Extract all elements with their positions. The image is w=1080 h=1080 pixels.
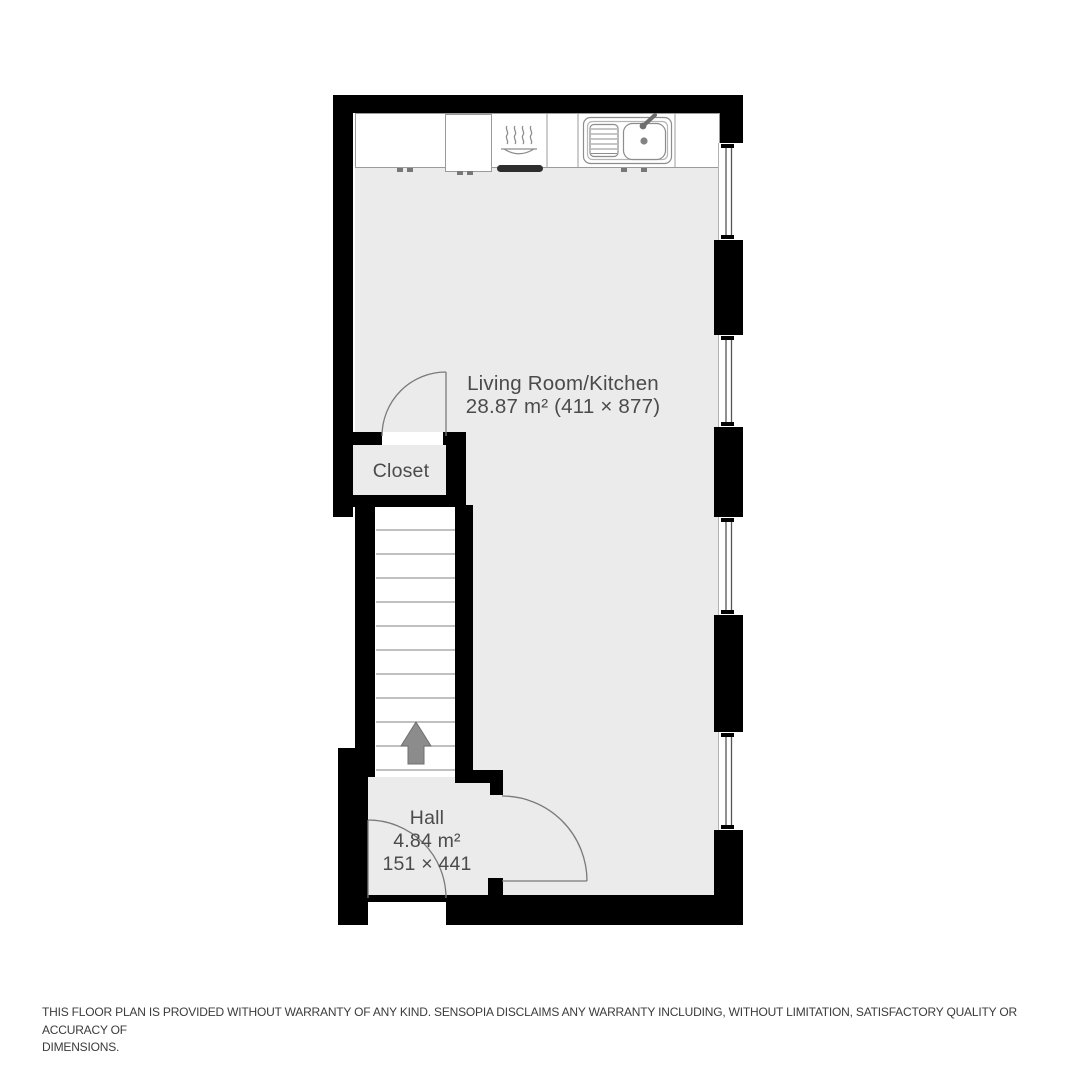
disclaimer-text: THIS FLOOR PLAN IS PROVIDED WITHOUT WARR… <box>42 1004 1042 1057</box>
floor-plan-page: Living Room/Kitchen 28.87 m² (411 × 877)… <box>0 0 1080 1080</box>
hall-dimensions: 151 × 441 <box>382 853 471 875</box>
bottom-right-corner-wall <box>714 830 743 925</box>
faucet-knob <box>640 123 647 130</box>
living-room-floor-lower <box>466 432 718 895</box>
hall-area: 4.84 m² <box>393 830 461 852</box>
sink-icon <box>584 115 672 164</box>
window-2 <box>718 335 743 427</box>
floor-plan: Living Room/Kitchen 28.87 m² (411 × 877)… <box>0 0 1080 1080</box>
hall-door-jamb-top <box>490 770 503 795</box>
right-wall-segment-1 <box>714 240 743 335</box>
closet-label: Closet <box>373 460 430 482</box>
right-wall-segment-3 <box>714 615 743 732</box>
top-wall <box>333 95 743 113</box>
base-cabinet <box>446 115 492 172</box>
closet-door-jamb-left <box>353 432 382 445</box>
staircase <box>375 507 457 777</box>
living-room-label: Living Room/Kitchen <box>467 372 659 395</box>
disclaimer-line-1: THIS FLOOR PLAN IS PROVIDED WITHOUT WARR… <box>42 1005 1017 1037</box>
window-1 <box>718 143 743 240</box>
kitchen-counter <box>356 114 720 176</box>
stair-right-wall <box>455 505 473 783</box>
top-right-corner-wall <box>720 95 743 143</box>
right-wall-segment-2 <box>714 427 743 517</box>
left-wall-upper <box>333 95 353 517</box>
entry-doorway-gap <box>368 902 446 925</box>
window-4 <box>718 732 743 830</box>
oven-door-bar <box>497 165 543 172</box>
window-3 <box>718 517 743 615</box>
hall-door-jamb-bottom <box>488 878 503 895</box>
disclaimer-line-2: DIMENSIONS. <box>42 1040 119 1054</box>
sink-drain <box>640 137 647 144</box>
stair-left-wall <box>355 495 375 777</box>
living-room-dimensions: 28.87 m² (411 × 877) <box>466 395 661 418</box>
hall-label: Hall <box>410 807 444 829</box>
